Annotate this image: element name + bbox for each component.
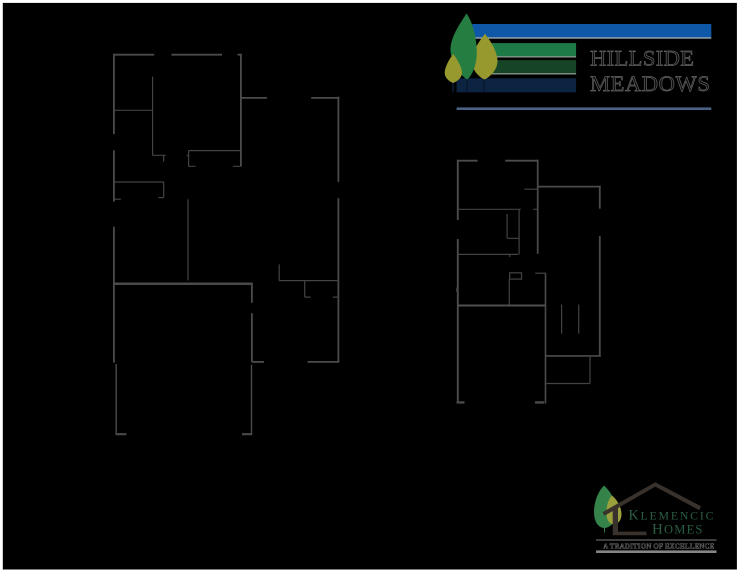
svg-text:MEADOWS: MEADOWS — [590, 71, 710, 96]
svg-text:KLEMENCIC: KLEMENCIC — [629, 507, 716, 523]
svg-text:HOMES: HOMES — [652, 522, 704, 538]
svg-text:HILLSIDE: HILLSIDE — [590, 46, 694, 71]
svg-text:A TRADITION OF EXCELLENCE: A TRADITION OF EXCELLENCE — [603, 543, 714, 550]
